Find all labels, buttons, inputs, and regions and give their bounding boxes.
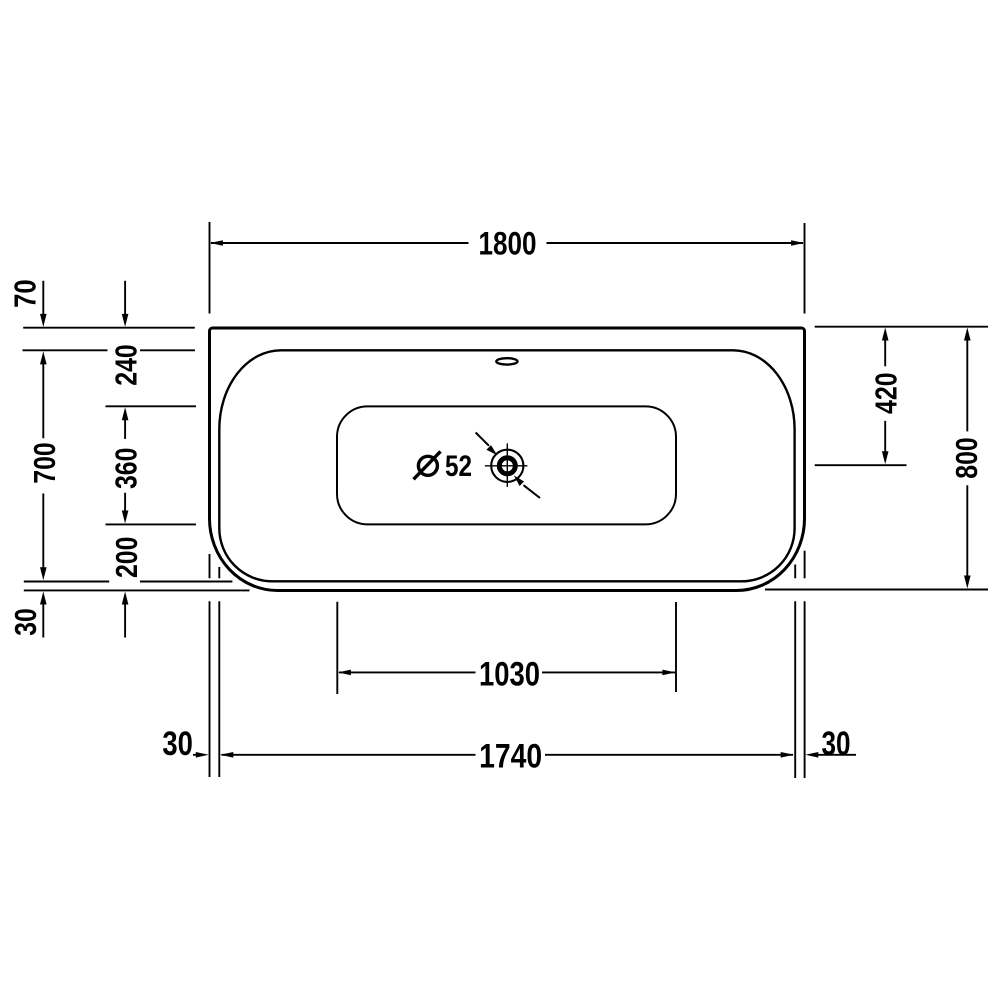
svg-text:800: 800 [949, 437, 984, 479]
svg-text:30: 30 [822, 725, 851, 763]
svg-text:420: 420 [868, 372, 903, 414]
svg-text:70: 70 [7, 279, 42, 308]
svg-text:30: 30 [162, 725, 193, 763]
svg-text:200: 200 [109, 537, 144, 579]
svg-text:1030: 1030 [479, 655, 540, 693]
svg-text:30: 30 [8, 608, 43, 636]
svg-text:52: 52 [445, 450, 472, 483]
svg-text:360: 360 [108, 448, 143, 490]
svg-text:1740: 1740 [479, 737, 542, 775]
svg-text:700: 700 [27, 442, 62, 484]
svg-text:240: 240 [109, 344, 144, 386]
svg-text:1800: 1800 [479, 226, 537, 262]
